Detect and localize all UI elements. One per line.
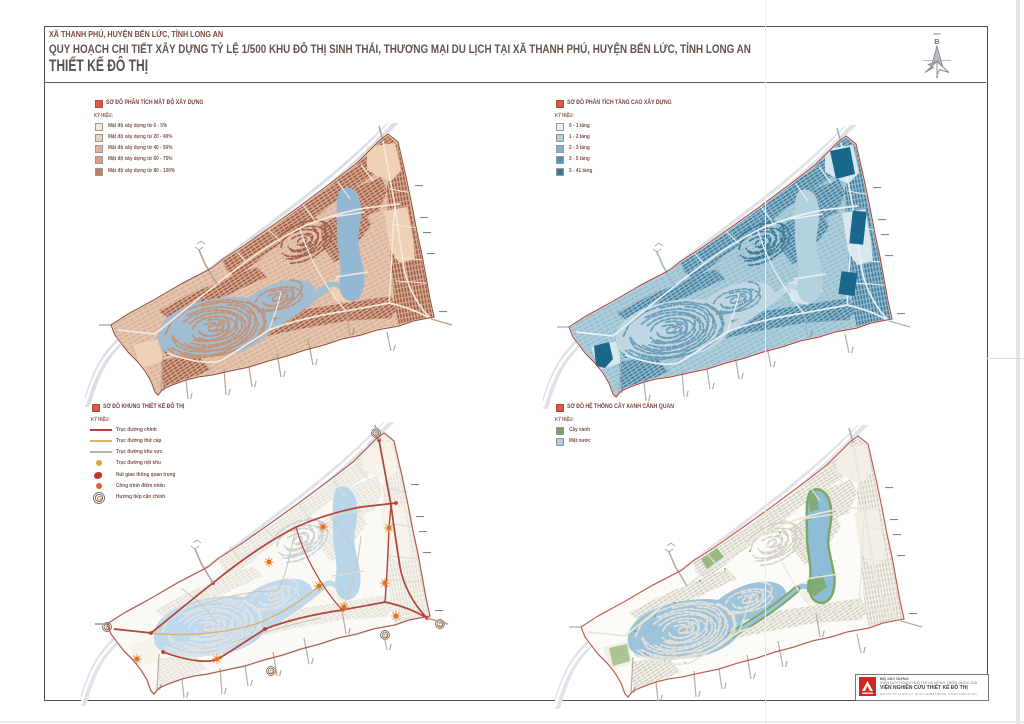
- svg-text:B: B: [934, 37, 940, 46]
